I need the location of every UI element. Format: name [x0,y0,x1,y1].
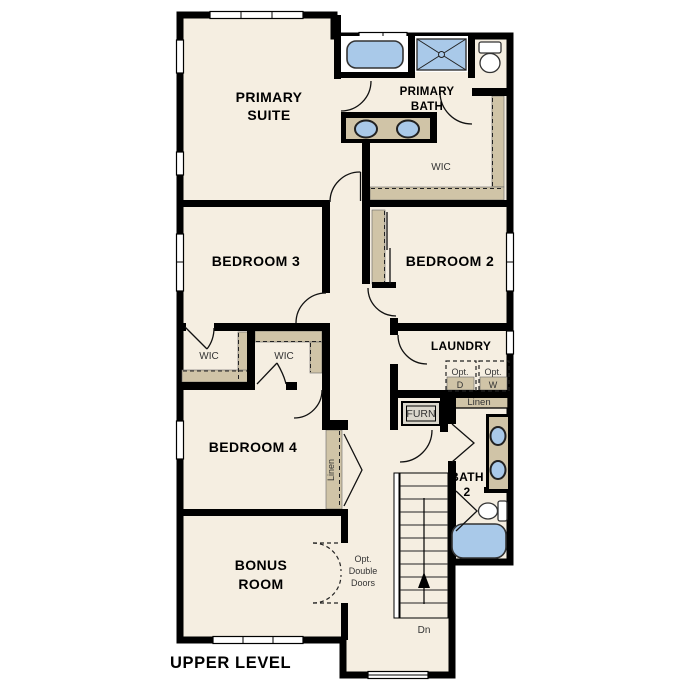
room-label-bath2: 2 [464,485,471,499]
floor-plan-page: PRIMARY SUITE PRIMARY BATH WIC BEDROOM 3… [0,0,687,687]
opt-washer-label: Opt. [484,367,501,377]
room-label-primary-bath: BATH [411,101,443,113]
room-label-bedroom4: BEDROOM 4 [209,439,297,455]
window [177,40,184,73]
sink-icon [397,121,419,138]
room-label-bonus-room: BONUS [235,557,288,573]
toilet-icon [479,42,501,73]
room-label-primary-suite: PRIMARY [236,89,303,105]
window [177,152,184,175]
linen-hall-label: Linen [467,397,490,408]
opt-dryer-label: Opt. [451,367,468,377]
opt-double-doors-label: Double [349,566,378,576]
opt-double-doors-label: Opt. [354,554,371,564]
bedroom2-closet-shelf [372,210,385,284]
sink-icon [491,461,506,479]
room-label-wic-left: WIC [199,351,218,362]
furnace-label: FURN [406,408,435,420]
room-label-wic-primary: WIC [431,162,450,173]
window [210,12,303,19]
window [177,234,184,291]
stairs-down-label: Dn [418,625,431,636]
linen-bedroom4-label: Linen [326,459,336,481]
sink-icon [491,427,506,445]
opt-double-doors-label: Doors [351,578,376,588]
window [213,637,303,644]
window [177,421,184,459]
room-label-bonus-room: ROOM [238,576,283,592]
vanity-counter [346,118,430,139]
room-label-primary-bath: PRIMARY [400,86,455,98]
bathtub-icon [452,524,506,558]
room-label-laundry: LAUNDRY [431,339,491,353]
primary-wic-shelf-right [492,96,504,187]
wic-right-shelf-top [255,331,322,342]
toilet-icon [479,501,508,521]
wic-right-shelf-side [310,342,322,373]
floor-plan-svg: PRIMARY SUITE PRIMARY BATH WIC BEDROOM 3… [0,0,687,687]
room-label-primary-suite: SUITE [247,107,290,123]
opt-washer-label: W [489,380,498,390]
window [507,233,514,291]
room-label-wic-right: WIC [274,351,293,362]
wic-left-shelf-bottom [182,370,250,382]
room-label-bedroom3: BEDROOM 3 [212,253,300,269]
stair-railing [394,473,399,618]
window [368,672,428,679]
bathtub-icon [347,41,403,68]
page-title: UPPER LEVEL [170,654,291,672]
room-label-bedroom2: BEDROOM 2 [406,253,494,269]
window [507,331,514,354]
sink-icon [355,121,377,138]
room-label-bath2: BATH [450,470,484,484]
opt-dryer-label: D [457,380,464,390]
shower-icon [415,36,468,72]
vanity-counter [486,414,510,492]
